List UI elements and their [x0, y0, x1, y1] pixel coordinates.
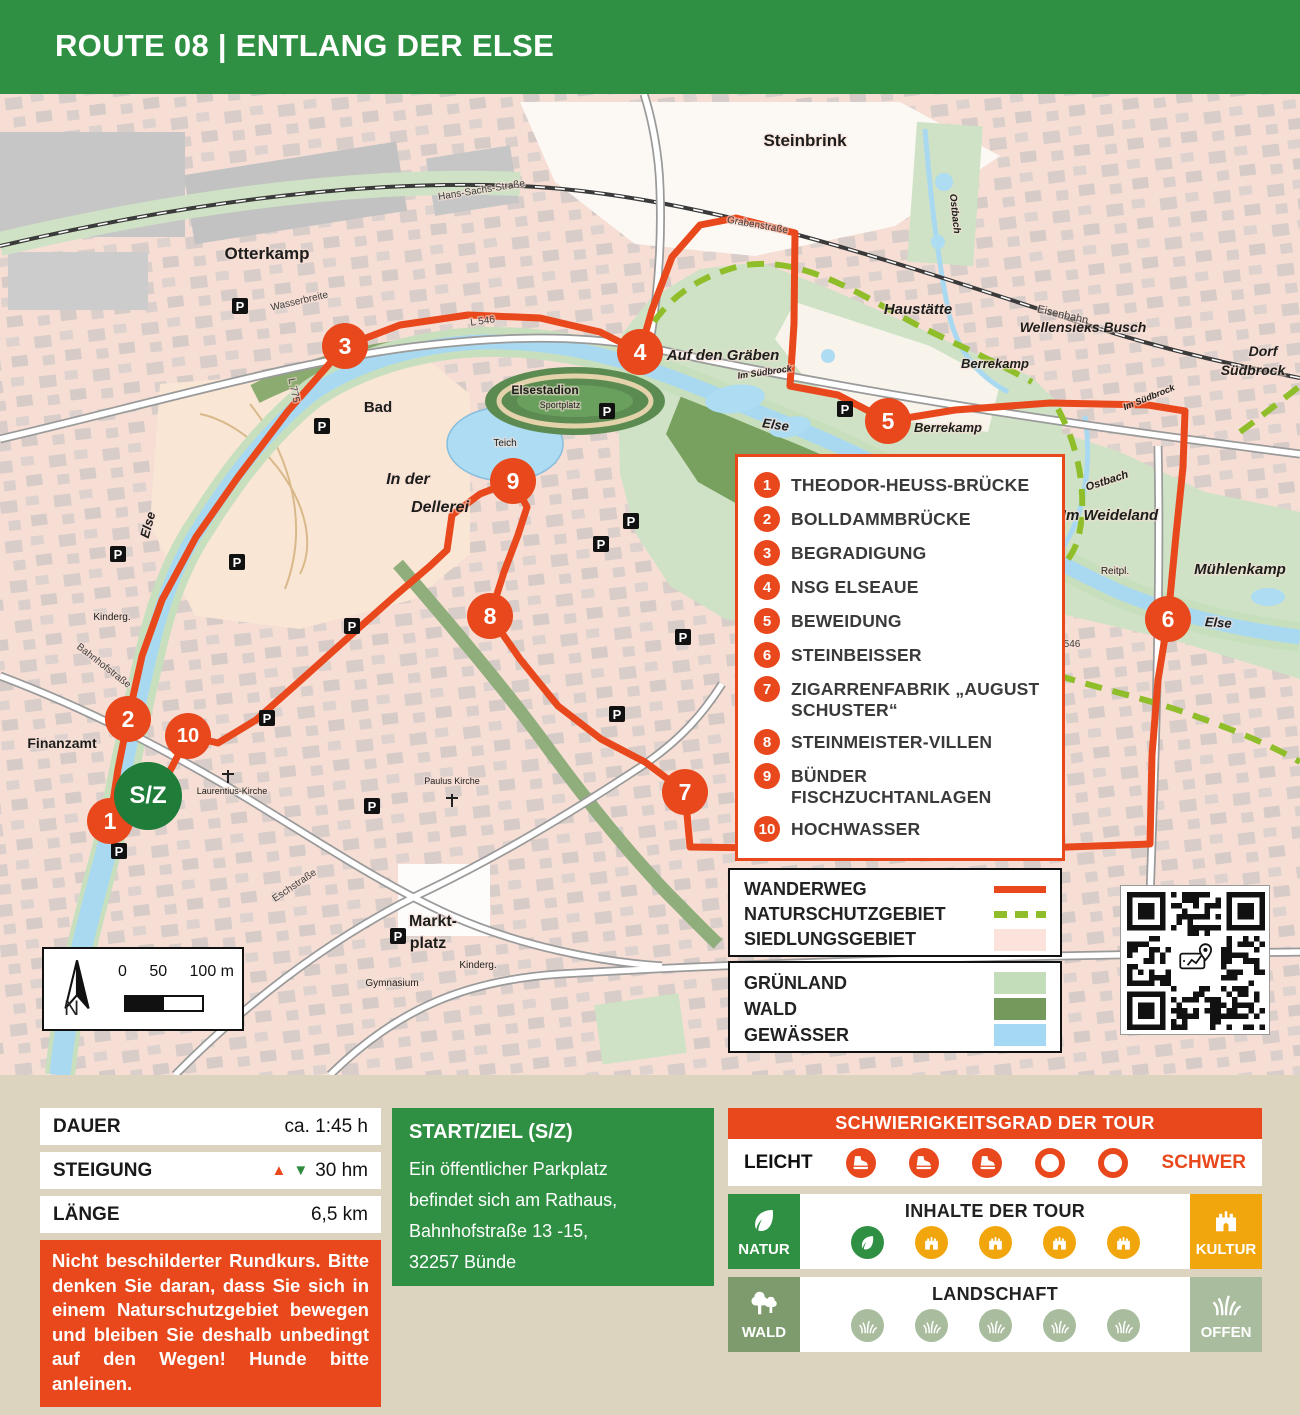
poi-label: BEWEIDUNG: [791, 608, 902, 632]
poi-label: BÜNDER FISCHZUCHTANLAGEN: [791, 763, 1050, 808]
culture-dot: [1107, 1226, 1140, 1259]
difficulty-dot: [972, 1148, 1002, 1178]
legend-label: NATURSCHUTZGEBIET: [744, 904, 946, 925]
waypoint-badge: 2: [754, 506, 780, 532]
stat-value: 6,5 km: [311, 1204, 368, 1226]
landscape-dot: [979, 1309, 1012, 1342]
waypoint-badge: 10: [754, 816, 780, 842]
scale-tick: 50: [149, 963, 167, 981]
natur-label: NATUR: [738, 1241, 789, 1258]
legend-row: WALD: [744, 996, 1046, 1022]
waypoint-marker-2: 2: [105, 696, 151, 742]
tour-stats: DAUERca. 1:45 hSTEIGUNG▲▼30 hmLÄNGE6,5 k…: [40, 1108, 381, 1240]
natur-square: NATUR: [728, 1194, 800, 1269]
legend-label: GEWÄSSER: [744, 1025, 849, 1046]
content-title: INHALTE DER TOUR: [905, 1201, 1085, 1222]
landscape-dot: [915, 1309, 948, 1342]
landscape-dot: [1043, 1309, 1076, 1342]
waypoint-marker-4: 4: [617, 329, 663, 375]
legend-symbol: [994, 911, 1046, 918]
start-text-line: Ein öffentlicher Parkplatz: [409, 1159, 608, 1179]
landscape-dot: [851, 1309, 884, 1342]
legend-row: GEWÄSSER: [744, 1022, 1046, 1048]
difficulty-header: SCHWIERIGKEITSGRAD DER TOUR: [728, 1108, 1262, 1139]
stat-row: DAUERca. 1:45 h: [40, 1108, 381, 1145]
legend-label: WALD: [744, 999, 797, 1020]
difficulty-scale: LEICHT SCHWER: [728, 1139, 1262, 1186]
poi-label: BOLLDAMMBRÜCKE: [791, 506, 971, 530]
route-map: PPPPPPPPPPPPPPP SteinbrinkOtterkampHaust…: [0, 94, 1300, 1075]
grass-icon: [1211, 1288, 1241, 1322]
scale-tick: 100 m: [190, 963, 234, 981]
qr-code: [1120, 885, 1270, 1035]
poi-item: 1THEODOR-HEUSS-BRÜCKE: [754, 472, 1050, 498]
difficulty-dot: [1035, 1148, 1065, 1178]
difficulty-dot: [1098, 1148, 1128, 1178]
waypoint-marker-3: 3: [322, 323, 368, 369]
waypoint-marker-7: 7: [662, 769, 708, 815]
legend-label: WANDERWEG: [744, 879, 867, 900]
poi-label: BEGRADIGUNG: [791, 540, 926, 564]
ratings-panel: SCHWIERIGKEITSGRAD DER TOUR LEICHT SCHWE…: [728, 1108, 1262, 1360]
waypoint-badge: 3: [754, 540, 780, 566]
stat-label: LÄNGE: [53, 1204, 120, 1226]
north-label: N: [64, 997, 79, 1021]
nature-dot: [851, 1226, 884, 1259]
stat-value-group: ▲▼30 hm: [271, 1160, 368, 1182]
castle-icon: [1211, 1205, 1241, 1239]
stat-value-group: 6,5 km: [311, 1204, 368, 1226]
waypoint-badge: 9: [754, 763, 780, 789]
poi-label: HOCHWASSER: [791, 816, 920, 840]
poi-item: 5BEWEIDUNG: [754, 608, 1050, 634]
difficulty-hard-label: SCHWER: [1162, 1152, 1246, 1174]
route-flyer: ROUTE 08 | ENTLANG DER ELSE: [0, 0, 1300, 1415]
wald-square: WALD: [728, 1277, 800, 1352]
poi-legend: 1THEODOR-HEUSS-BRÜCKE2BOLLDAMMBRÜCKE3BEG…: [735, 454, 1065, 861]
start-finish-marker: S/Z: [114, 762, 182, 830]
scale-ticks: 050100 m: [118, 963, 234, 981]
legend-symbol: [994, 1024, 1046, 1046]
start-text-line: Bahnhofstraße 13 -15,: [409, 1221, 588, 1241]
waypoint-badge: 5: [754, 608, 780, 634]
legend-label: SIEDLUNGSGEBIET: [744, 929, 916, 950]
poi-item: 4NSG ELSEAUE: [754, 574, 1050, 600]
ascent-icon: ▲: [271, 1163, 286, 1178]
landscape-mid: LANDSCHAFT: [800, 1277, 1190, 1352]
waypoint-badge: 8: [754, 729, 780, 755]
legend-row: NATURSCHUTZGEBIET: [744, 902, 1046, 927]
landscape-scale: WALD LANDSCHAFT OFFEN: [728, 1277, 1262, 1352]
poi-item: 6STEINBEISSER: [754, 642, 1050, 668]
start-title: START/ZIEL (S/Z): [409, 1121, 697, 1144]
legend-symbol: [994, 929, 1046, 951]
difficulty-dot: [846, 1148, 876, 1178]
scale-tick: 0: [118, 963, 127, 981]
poi-label: NSG ELSEAUE: [791, 574, 919, 598]
culture-dot: [1043, 1226, 1076, 1259]
culture-dot: [979, 1226, 1012, 1259]
legend-row: SIEDLUNGSGEBIET: [744, 927, 1046, 952]
poi-item: 2BOLLDAMMBRÜCKE: [754, 506, 1050, 532]
map-legend-areas: GRÜNLANDWALDGEWÄSSER: [728, 961, 1062, 1053]
leaf-icon: [749, 1205, 779, 1239]
poi-item: 8STEINMEISTER-VILLEN: [754, 729, 1050, 755]
poi-item: 7ZIGARRENFABRIK „AUGUST SCHUSTER“: [754, 676, 1050, 721]
waypoint-badge: 1: [754, 472, 780, 498]
legend-symbol: [994, 972, 1046, 994]
map-legend-routes: WANDERWEGNATURSCHUTZGEBIETSIEDLUNGSGEBIE…: [728, 868, 1062, 957]
wald-label: WALD: [742, 1324, 786, 1341]
landscape-title: LANDSCHAFT: [932, 1284, 1058, 1305]
offen-square: OFFEN: [1190, 1277, 1262, 1352]
waypoint-marker-5: 5: [865, 398, 911, 444]
start-text-line: 32257 Bünde: [409, 1252, 516, 1272]
warning-note: Nicht beschilderter Rundkurs. Bitte denk…: [40, 1240, 381, 1407]
waypoint-badge: 6: [754, 642, 780, 668]
legend-label: GRÜNLAND: [744, 973, 847, 994]
culture-dot: [915, 1226, 948, 1259]
kultur-square: KULTUR: [1190, 1194, 1262, 1269]
difficulty-dot: [909, 1148, 939, 1178]
waypoint-badge: 7: [754, 676, 780, 702]
descent-icon: ▼: [293, 1163, 308, 1178]
kultur-label: KULTUR: [1196, 1241, 1257, 1258]
page-title: ROUTE 08 | ENTLANG DER ELSE: [0, 0, 1300, 64]
poi-label: THEODOR-HEUSS-BRÜCKE: [791, 472, 1029, 496]
scale-bar: [124, 995, 204, 1012]
scale-box: N 050100 m: [42, 947, 244, 1031]
difficulty-easy-label: LEICHT: [744, 1152, 813, 1174]
trees-icon: [749, 1288, 779, 1322]
poi-label: STEINBEISSER: [791, 642, 922, 666]
stat-label: DAUER: [53, 1116, 121, 1138]
stat-row: STEIGUNG▲▼30 hm: [40, 1152, 381, 1189]
header: ROUTE 08 | ENTLANG DER ELSE: [0, 0, 1300, 94]
poi-label: STEINMEISTER-VILLEN: [791, 729, 992, 753]
content-scale: NATUR INHALTE DER TOUR KULTUR: [728, 1194, 1262, 1269]
map-pin-phone-icon: [1173, 938, 1219, 984]
stat-value: ca. 1:45 h: [285, 1116, 368, 1138]
waypoint-badge: 4: [754, 574, 780, 600]
legend-row: GRÜNLAND: [744, 970, 1046, 996]
landscape-dot: [1107, 1309, 1140, 1342]
content-mid: INHALTE DER TOUR: [800, 1194, 1190, 1269]
start-text-line: befindet sich am Rathaus,: [409, 1190, 617, 1210]
offen-label: OFFEN: [1201, 1324, 1252, 1341]
info-panel: DAUERca. 1:45 hSTEIGUNG▲▼30 hmLÄNGE6,5 k…: [0, 1075, 1300, 1415]
stat-row: LÄNGE6,5 km: [40, 1196, 381, 1233]
stat-label: STEIGUNG: [53, 1160, 152, 1182]
waypoint-marker-9: 9: [490, 458, 536, 504]
poi-label: ZIGARRENFABRIK „AUGUST SCHUSTER“: [791, 676, 1050, 721]
legend-row: WANDERWEG: [744, 877, 1046, 902]
waypoint-marker-8: 8: [467, 593, 513, 639]
start-text: Ein öffentlicher Parkplatzbefindet sich …: [409, 1154, 697, 1278]
poi-item: 9BÜNDER FISCHZUCHTANLAGEN: [754, 763, 1050, 808]
legend-symbol: [994, 998, 1046, 1020]
waypoint-marker-10: 10: [165, 713, 211, 759]
poi-item: 3BEGRADIGUNG: [754, 540, 1050, 566]
legend-symbol: [994, 886, 1046, 893]
stat-value-group: ca. 1:45 h: [285, 1116, 368, 1138]
start-info: START/ZIEL (S/Z) Ein öffentlicher Parkpl…: [392, 1108, 714, 1286]
stat-value: 30 hm: [315, 1160, 368, 1182]
poi-item: 10HOCHWASSER: [754, 816, 1050, 842]
waypoint-marker-6: 6: [1145, 596, 1191, 642]
